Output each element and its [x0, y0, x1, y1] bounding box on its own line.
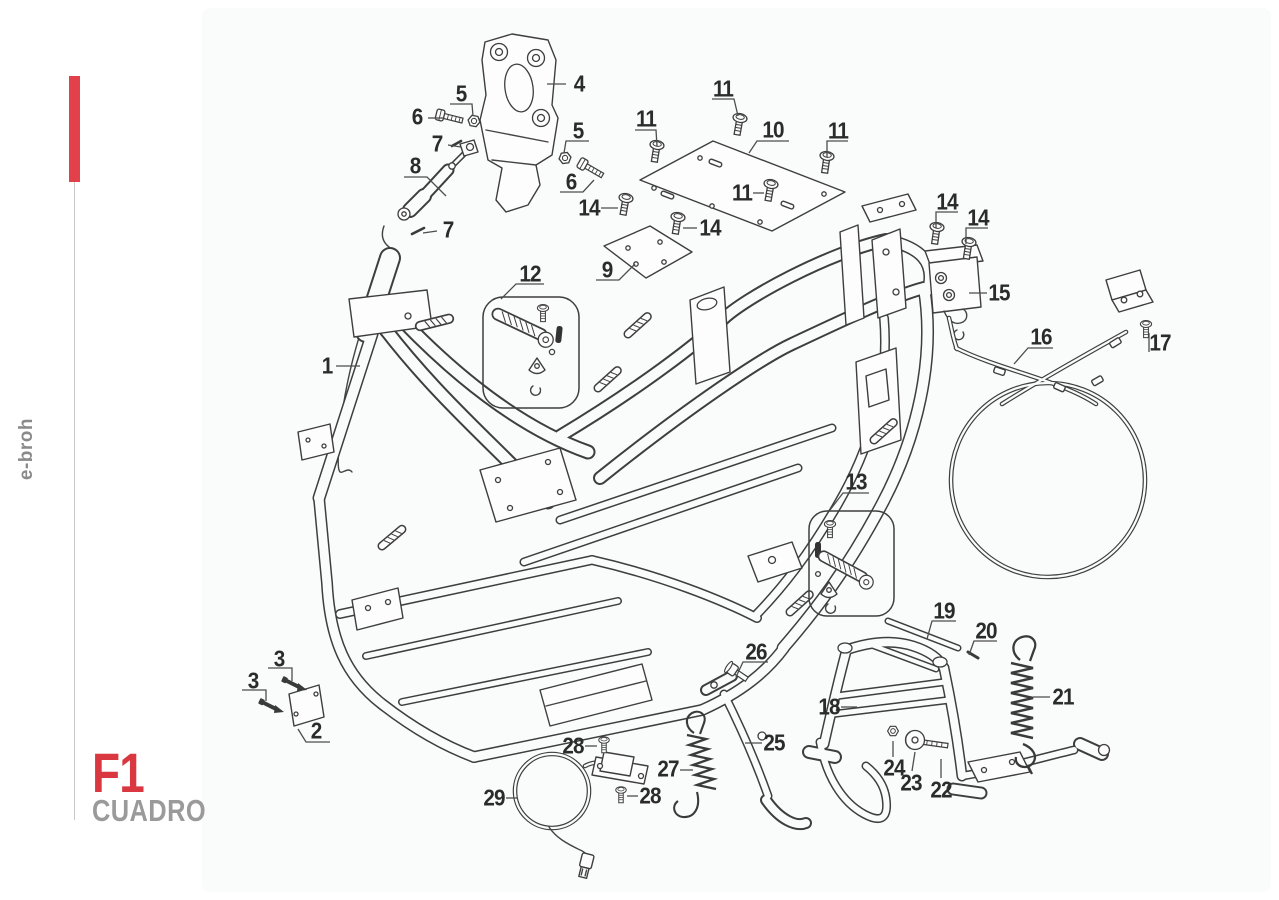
part-callout-6b: 6: [566, 169, 577, 196]
part-callout-14c: 14: [936, 189, 957, 216]
part-16-seat-cable: [949, 318, 1145, 577]
part-17-cable-bracket: [1106, 270, 1153, 338]
frame-tubes-outline: [319, 152, 1102, 824]
part-callout-7b: 7: [443, 217, 454, 244]
part-callout-29: 29: [483, 785, 504, 812]
brand-logo-vertical: e-broh: [16, 418, 38, 480]
part-callout-8: 8: [410, 153, 421, 180]
part-callout-13: 13: [845, 469, 866, 496]
part-callout-2: 2: [311, 718, 322, 745]
part-callout-18: 18: [818, 694, 839, 721]
exploded-parts-diagram: [0, 0, 1279, 900]
part-callout-24: 24: [883, 755, 904, 782]
part-callout-10: 10: [762, 117, 783, 144]
part-callout-19: 19: [933, 598, 954, 625]
part-callout-3b: 3: [248, 668, 259, 695]
part-callout-11c: 11: [828, 118, 848, 145]
part-callout-6a: 6: [412, 104, 423, 131]
part-12-footpeg-kit: [483, 297, 579, 408]
part-callout-11a: 11: [713, 76, 733, 103]
part-callout-14a: 14: [578, 195, 599, 222]
part-callout-11d: 11: [732, 180, 752, 207]
part-callout-12: 12: [519, 261, 540, 288]
frame-tubes-fill: [319, 152, 1102, 824]
part-callout-1: 1: [322, 353, 333, 380]
part-callout-14b: 14: [699, 215, 720, 242]
part-23-roller: [906, 731, 925, 750]
part-27-spring: [674, 712, 716, 817]
part-callout-17: 17: [1149, 330, 1170, 357]
part-callout-11b: 11: [636, 106, 656, 133]
part-callout-27: 27: [657, 756, 678, 783]
part-callout-5b: 5: [573, 118, 584, 145]
part-callout-25: 25: [763, 730, 784, 757]
part-callout-4: 4: [574, 71, 585, 98]
part-callout-20: 20: [975, 618, 996, 645]
part-29-stand-switch: [515, 752, 648, 879]
part-4-engine-bracket: [480, 34, 558, 212]
part-callout-28a: 28: [562, 733, 583, 760]
part-callout-5a: 5: [456, 81, 467, 108]
part-callout-9: 9: [602, 257, 613, 284]
part-callout-3a: 3: [274, 646, 285, 673]
part-callout-26: 26: [745, 639, 766, 666]
part-callout-21: 21: [1052, 684, 1073, 711]
part-callout-14d: 14: [967, 205, 988, 232]
part-callout-16: 16: [1030, 324, 1051, 351]
accent-bar: [69, 76, 80, 182]
part-callout-7a: 7: [432, 131, 443, 158]
figure-title: CUADRO: [92, 793, 206, 829]
part-callout-22: 22: [930, 777, 951, 804]
divider-line: [74, 182, 75, 820]
part-callout-28b: 28: [639, 783, 660, 810]
part-callout-15: 15: [988, 280, 1009, 307]
